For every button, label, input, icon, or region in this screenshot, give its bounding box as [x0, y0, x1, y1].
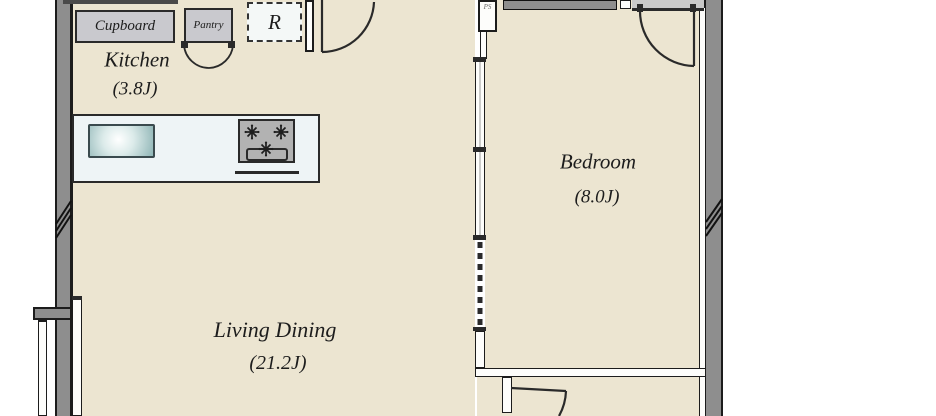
window-glass-line: [480, 62, 481, 147]
top-wall-bar: [63, 0, 178, 4]
partition-cap-2: [473, 235, 486, 240]
partition-stem: [480, 32, 487, 59]
pantry-hinge-left: [181, 41, 188, 48]
hall-door-stub: [502, 377, 512, 413]
partition-window-1: [475, 62, 485, 147]
balcony-wall-stub: [33, 307, 72, 320]
living-dining-size-label: (21.2J): [249, 353, 306, 373]
left-outer-wall: [55, 0, 72, 416]
balcony-window-inner: [72, 297, 82, 416]
door-post-left: [637, 4, 643, 12]
bedroom-label: Bedroom: [560, 152, 636, 173]
entry-wall-stub: [305, 0, 314, 52]
pipe-shaft-box: PS: [478, 0, 497, 32]
partition-solid: [475, 331, 485, 368]
kitchen-label: Kitchen: [104, 50, 169, 71]
window-glass-line: [480, 152, 481, 235]
cupboard-box: Cupboard: [75, 10, 175, 43]
sink: [88, 124, 155, 158]
floorplan: Cupboard Pantry R PS: [0, 0, 936, 416]
door-post-right: [690, 4, 696, 12]
kitchen-size-label: (3.8J): [113, 80, 158, 99]
pipe-shaft-label: PS: [480, 2, 495, 11]
stove-grill: [246, 148, 288, 161]
partition-window-2: [475, 152, 485, 235]
living-dining-label: Living Dining: [214, 319, 337, 341]
right-wall-inner-strip: [699, 8, 705, 416]
pantry-label: Pantry: [186, 10, 231, 41]
window-cap: [72, 296, 82, 300]
bedroom-closet: [503, 0, 617, 10]
bedroom-size-label: (8.0J): [575, 188, 620, 207]
pantry-box: Pantry: [184, 8, 233, 43]
bedroom-bottom-wall: [475, 368, 706, 377]
counter-edge-line: [235, 171, 299, 174]
refrigerator-label: R: [249, 4, 300, 40]
refrigerator-space: R: [247, 2, 302, 42]
bedroom-top-stub: [620, 0, 631, 9]
right-outer-wall: [704, 0, 723, 416]
balcony-window-outer: [38, 320, 47, 416]
pantry-hinge-right: [228, 41, 235, 48]
bedroom-floor: [485, 0, 700, 368]
cupboard-label: Cupboard: [77, 12, 173, 41]
